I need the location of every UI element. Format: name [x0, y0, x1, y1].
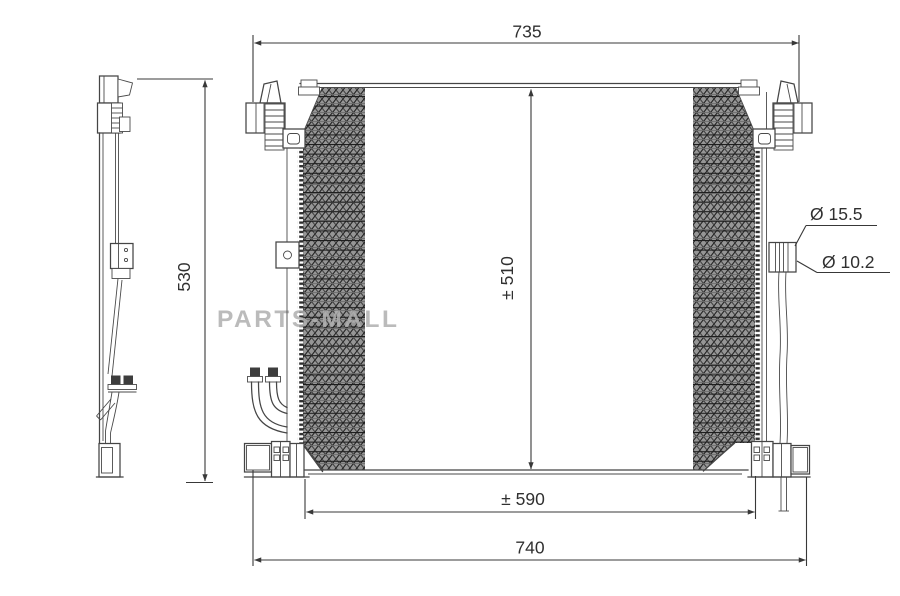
- side-mid-bracket: [111, 244, 134, 279]
- callout-port-large: Ø 15.5: [795, 204, 877, 246]
- dim-bottom-width: 740: [253, 470, 807, 566]
- core-right-hatch: [693, 88, 762, 471]
- dim-label-740: 740: [515, 538, 544, 558]
- dim-core-height: ± 510: [497, 90, 531, 470]
- dim-left-height: 530: [137, 79, 213, 483]
- port-fitting-block: [769, 243, 796, 273]
- side-pipe-fittings: [97, 376, 137, 444]
- side-view: [97, 76, 137, 477]
- dim-label-530: 530: [174, 262, 194, 291]
- watermark-text: PARTS-MALL: [217, 306, 399, 333]
- callout-port-small: Ø 10.2: [797, 252, 890, 273]
- dim-core-width: ± 590: [305, 476, 756, 519]
- callout-label-10-2: Ø 10.2: [822, 252, 875, 272]
- mount-pin-left: [276, 242, 299, 268]
- callout-label-15-5: Ø 15.5: [810, 204, 863, 224]
- side-bottom-bracket: [97, 444, 124, 478]
- condenser-technical-drawing: PARTS-MALL: [0, 0, 900, 596]
- dim-label-735: 735: [512, 22, 541, 42]
- inlet-outlet-pipes: [248, 368, 288, 434]
- drawing-svg: PARTS-MALL: [0, 0, 900, 596]
- core-left-hatch: [298, 88, 366, 471]
- dim-label-590: ± 590: [501, 489, 545, 509]
- dim-label-510: ± 510: [497, 256, 517, 300]
